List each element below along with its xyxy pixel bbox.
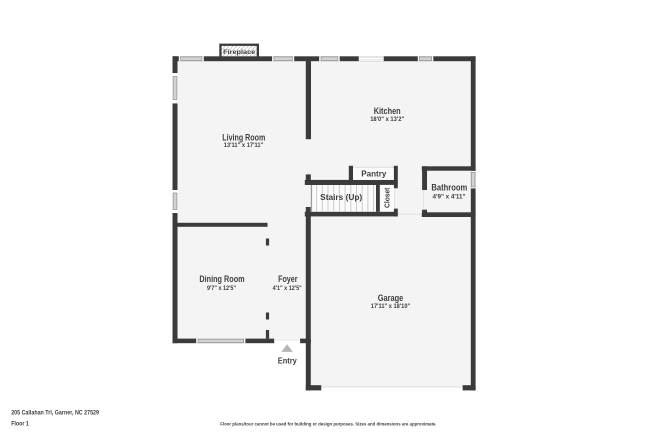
svg-text:Garage: Garage — [378, 293, 404, 303]
svg-text:Dining Room: Dining Room — [199, 274, 244, 284]
svg-text:13'11" x 17'11": 13'11" x 17'11" — [224, 142, 264, 149]
svg-text:Floor plans/tour cannot be use: Floor plans/tour cannot be used for buil… — [220, 422, 436, 428]
svg-text:Stairs (Up): Stairs (Up) — [320, 193, 362, 202]
svg-text:Closet: Closet — [383, 187, 392, 208]
svg-text:Pantry: Pantry — [361, 169, 386, 178]
svg-text:205 Callahan Trl, Garner, NC 2: 205 Callahan Trl, Garner, NC 27529 — [11, 409, 99, 416]
svg-text:18'0" x 13'2": 18'0" x 13'2" — [370, 116, 404, 123]
svg-text:4'1" x 12'5": 4'1" x 12'5" — [273, 285, 302, 292]
svg-text:Floor 1: Floor 1 — [11, 421, 29, 428]
svg-text:4'9" x 4'11": 4'9" x 4'11" — [433, 193, 466, 200]
svg-text:17'11" x 18'10": 17'11" x 18'10" — [371, 303, 410, 310]
svg-text:Foyer: Foyer — [278, 274, 298, 284]
svg-text:Bathroom: Bathroom — [431, 182, 467, 192]
svg-text:9'7" x 12'5": 9'7" x 12'5" — [207, 285, 236, 292]
svg-text:Fireplace: Fireplace — [223, 49, 255, 56]
svg-text:Entry: Entry — [278, 355, 297, 365]
svg-text:Kitchen: Kitchen — [374, 106, 401, 116]
